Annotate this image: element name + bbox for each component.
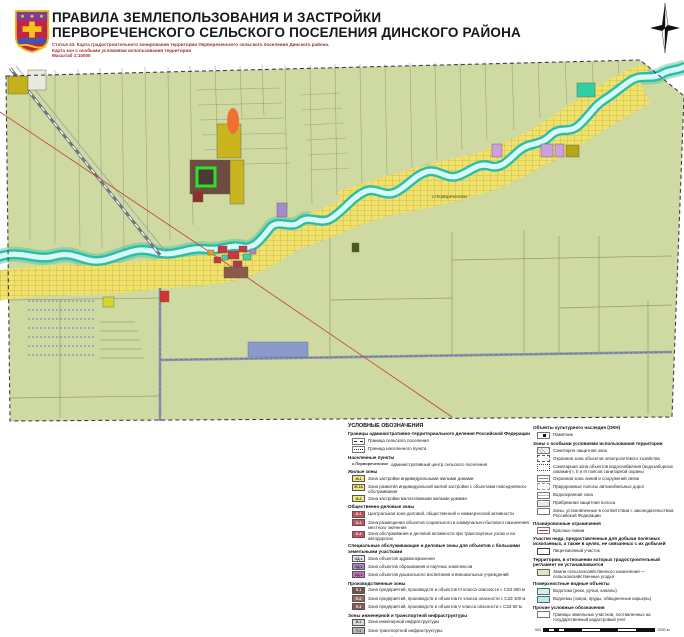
- legend-section: Населенные пунктыс.Первореченскоеадминис…: [346, 455, 533, 467]
- zone-swatch-П-3: П-3: [352, 603, 365, 610]
- legend-section: Территории, в отношении которых градостр…: [531, 557, 683, 579]
- legend-item: Т-1Зона транспортной инфраструктуры: [352, 627, 533, 634]
- scale-bar-right-label: 2500 м: [657, 628, 669, 632]
- legend-item-label: Придорожные полосы автомобильных дорог: [553, 483, 644, 489]
- legend-item-label: Зона транспортной инфраструктуры: [368, 627, 442, 633]
- legend-section: Специальные обслуживающие и деловые зоны…: [346, 543, 533, 578]
- legend-item-label: Зона предприятий, производств и объектов…: [368, 595, 525, 601]
- swatch-icon: [537, 569, 550, 576]
- legend-item: О-3Зона обслуживания и деловой активност…: [352, 531, 533, 542]
- legend-item: Охранная зона линий и сооружений связи: [537, 475, 683, 482]
- legend-section: Планировочные ограниченияКрасные линии: [531, 521, 683, 534]
- legend-section: Зоны с особыми условиями использования т…: [531, 441, 683, 519]
- legend-item-label: Зона объектов здравоохранения: [368, 555, 435, 561]
- legend-item: П-1Зона предприятий, производств и объек…: [352, 587, 533, 594]
- legend-item-label: Зона инженерной инфраструктуры: [368, 619, 439, 625]
- legend-item: О-2Зона размещения объектов социального …: [352, 519, 533, 530]
- legend-item-label: Лицензионный участок: [553, 548, 600, 554]
- legend-section: Границы административно-территориального…: [346, 431, 533, 453]
- legend-item: Придорожные полосы автомобильных дорог: [537, 483, 683, 490]
- legend-section: Объекты культурного наследия (ОКН)Памятн…: [531, 425, 683, 438]
- legend-section: Участки недр, предоставленные для добычи…: [531, 536, 683, 555]
- zone-swatch-ОД-3: ОД-3: [352, 571, 365, 578]
- box-dash2-icon: [537, 483, 550, 490]
- scale-bar-left-label: 500: [535, 628, 541, 632]
- box-dash-icon: [537, 455, 550, 462]
- legend-section-heading: Прочие условные обозначения: [533, 605, 683, 610]
- village-label: с.Первореченское: [432, 194, 468, 199]
- legend-section-heading: Специальные обслуживающие и деловые зоны…: [348, 543, 533, 553]
- legend-section-heading: Объекты культурного наследия (ОКН): [533, 425, 683, 430]
- legend-section-heading: Участки недр, предоставленные для добычи…: [533, 536, 683, 546]
- legend-section: Общественно-деловые зоныО-1Центральная з…: [346, 504, 533, 541]
- legend-item-label: Охранная зона линий и сооружений связи: [553, 475, 639, 481]
- zone-swatch-И-1: И-1: [352, 619, 365, 626]
- zone-swatch-О-1: О-1: [352, 511, 365, 518]
- boundary-settlement-icon: [352, 438, 365, 445]
- legend-item: Ж-1Зона застройки индивидуальными жилыми…: [352, 475, 533, 482]
- legend-section: Зоны инженерной и транспортной инфрастру…: [346, 613, 533, 635]
- legend-item-label: Центральная зона деловой, общественной и…: [368, 511, 514, 517]
- legend-item: с.Первореченскоеадминистративный центр с…: [352, 461, 533, 467]
- box-wave-icon: [537, 492, 550, 499]
- zone-swatch-ОД-1: ОД-1: [352, 555, 365, 562]
- legend-left-column: УСЛОВНЫЕ ОБОЗНАЧЕНИЯ Границы администрат…: [346, 423, 533, 637]
- legend-item: Красные линии: [537, 527, 683, 534]
- legend-item-label: Зона предприятий, производств и объектов…: [368, 587, 525, 593]
- legend-item: Границы земельных участков, поставленных…: [537, 611, 683, 622]
- legend-item-label: Зона размещения объектов социального и к…: [368, 519, 533, 530]
- legend-item-label: Зоны, установленные в соответствии с зак…: [553, 508, 683, 519]
- scale-bar-segments: [543, 628, 655, 632]
- zone-swatch-Ж-1: Ж-1: [352, 475, 365, 482]
- legend-item: Памятник: [537, 432, 683, 439]
- legend-item: Санитарно-защитная зона: [537, 447, 683, 454]
- legend-item: ОД-3Зона объектов дошкольного воспитания…: [352, 571, 533, 578]
- legend-item: П-2Зона предприятий, производств и объек…: [352, 595, 533, 602]
- legend-item: Санитарная зона объектов водоснабжения (…: [537, 464, 683, 475]
- legend-item-label: Водоохранная зона: [553, 492, 593, 498]
- legend-item: Водоемы (озера, пруды, обводненные карье…: [537, 596, 683, 603]
- legend-item-label: административный центр сельского поселен…: [391, 461, 487, 467]
- legend-item: Граница населенного пункта: [352, 446, 533, 453]
- legend-section: Поверхностные водные объектыВодотоки (ре…: [531, 581, 683, 603]
- legend-item: Водотоки (реки, ручьи, каналы): [537, 588, 683, 595]
- legend-section-heading: Границы административно-территориального…: [348, 431, 533, 436]
- legend-item-label: Граница населенного пункта: [368, 446, 426, 452]
- legend-section-heading: Производственные зоны: [348, 581, 533, 586]
- legend-section-heading: Населенные пункты: [348, 455, 533, 460]
- zone-swatch-П-2: П-2: [352, 595, 365, 602]
- legend-item-label: Зона обслуживания и деловой активности п…: [368, 531, 533, 542]
- legend-item-label: Зона застройки малоэтажными жилыми домам…: [368, 495, 467, 501]
- box-plain-icon: [537, 508, 550, 515]
- box-line-icon: [537, 475, 550, 482]
- legend-item-label: Охранная зона объектов электросетевого х…: [553, 455, 660, 461]
- legend-item-label: Красные линии: [553, 527, 584, 533]
- legend-item: Прибрежная защитная полоса: [537, 500, 683, 507]
- legend-section-heading: Жилые зоны: [348, 469, 533, 474]
- legend-item: О-1Центральная зона деловой, общественно…: [352, 511, 533, 518]
- legend-section-heading: Территории, в отношении которых градостр…: [533, 557, 683, 567]
- legend-item-label: Зона предприятий, производств и объектов…: [368, 603, 522, 609]
- legend-item-label: Санитарно-защитная зона: [553, 447, 607, 453]
- zone-swatch-О-2: О-2: [352, 519, 365, 526]
- red-line-icon: [537, 527, 550, 534]
- zone-swatch-ОД-2: ОД-2: [352, 563, 365, 570]
- legend-item: Лицензионный участок: [537, 548, 683, 555]
- legend-item: Охранная зона объектов электросетевого х…: [537, 455, 683, 462]
- legend-title: УСЛОВНЫЕ ОБОЗНАЧЕНИЯ: [348, 423, 533, 429]
- swatch-icon: [537, 588, 550, 595]
- legend-section-heading: Зоны инженерной и транспортной инфрастру…: [348, 613, 533, 618]
- legend-section-heading: Поверхностные водные объекты: [533, 581, 683, 586]
- zone-swatch-П-1: П-1: [352, 587, 365, 594]
- legend-section: Прочие условные обозначенияГраницы земел…: [531, 605, 683, 622]
- legend-section-heading: Общественно-деловые зоны: [348, 504, 533, 509]
- swatch-icon: [537, 596, 550, 603]
- legend-section-heading: Зоны с особыми условиями использования т…: [533, 441, 683, 446]
- legend-item: Зоны, установленные в соответствии с зак…: [537, 508, 683, 519]
- legend-section: Производственные зоныП-1Зона предприятий…: [346, 581, 533, 611]
- legend-item-label: Земли сельскохозяйственного назначения —…: [553, 569, 683, 580]
- legend-item-label: Зона объектов образования и научных комп…: [368, 563, 472, 569]
- legend-section-heading: Планировочные ограничения: [533, 521, 683, 526]
- legend-item-label: Прибрежная защитная полоса: [553, 500, 615, 506]
- legend-item-label: Водоемы (озера, пруды, обводненные карье…: [553, 596, 651, 602]
- box-plain-icon: [537, 611, 550, 618]
- legend-item: Граница сельского поселения: [352, 438, 533, 445]
- zone-swatch-Ж-2: Ж-2: [352, 495, 365, 502]
- legend-item: Ж-1АЗона развития индивидуальной жилой з…: [352, 484, 533, 495]
- legend-item-label: Памятник: [553, 432, 573, 438]
- legend-item: П-3Зона предприятий, производств и объек…: [352, 603, 533, 610]
- zone-swatch-О-3: О-3: [352, 531, 365, 538]
- legend-item-label: Зона объектов дошкольного воспитания и в…: [368, 571, 509, 577]
- legend-item-label: Зона застройки индивидуальными жилыми до…: [368, 475, 473, 481]
- legend-item-label: Границы земельных участков, поставленных…: [553, 611, 683, 622]
- box-dot-icon: [537, 464, 550, 471]
- legend-item-label: Зона развития индивидуальной жилой застр…: [368, 484, 533, 495]
- legend-item: И-1Зона инженерной инфраструктуры: [352, 619, 533, 626]
- okn-marker-icon: [537, 432, 550, 439]
- box-wave2-icon: [537, 500, 550, 507]
- zone-swatch-Ж-1А: Ж-1А: [352, 484, 365, 491]
- box-hatch-icon: [537, 447, 550, 454]
- legend-item: Водоохранная зона: [537, 492, 683, 499]
- boundary-locality-icon: [352, 446, 365, 453]
- zone-swatch-Т-1: Т-1: [352, 627, 365, 634]
- settlement-name-symbol: с.Первореченское: [352, 461, 388, 466]
- legend-right-column: Объекты культурного наследия (ОКН)Памятн…: [531, 423, 683, 637]
- legend-item-label: Граница сельского поселения: [368, 438, 429, 444]
- legend-item: ОД-2Зона объектов образования и научных …: [352, 563, 533, 570]
- legend-section: Жилые зоныЖ-1Зона застройки индивидуальн…: [346, 469, 533, 502]
- legend-item: Земли сельскохозяйственного назначения —…: [537, 569, 683, 580]
- legend-item: Ж-2Зона застройки малоэтажными жилыми до…: [352, 495, 533, 502]
- legend-item-label: Водотоки (реки, ручьи, каналы): [553, 588, 617, 594]
- legend-item: ОД-1Зона объектов здравоохранения: [352, 555, 533, 562]
- legend-item-label: Санитарная зона объектов водоснабжения (…: [553, 464, 683, 475]
- scale-bar: 500 2500 м: [533, 628, 683, 632]
- box-license-icon: [537, 548, 550, 555]
